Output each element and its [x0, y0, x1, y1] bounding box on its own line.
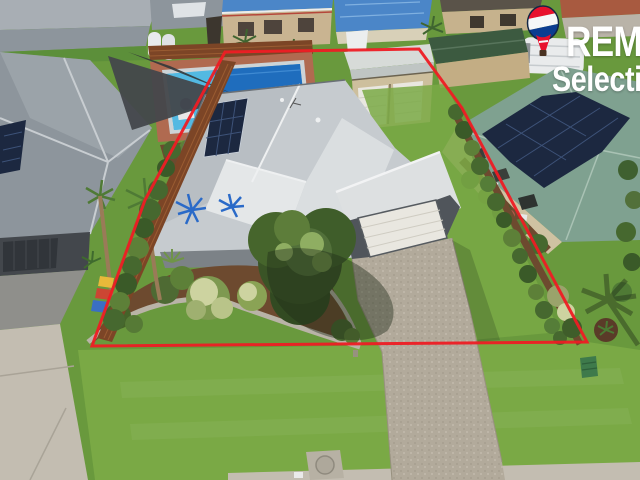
- solar-hot-water-unit: [172, 2, 206, 18]
- watermark-sub-text: Selecti: [552, 62, 640, 98]
- aerial-scene: [0, 0, 640, 480]
- front-lawn: [78, 342, 640, 480]
- utility-cover: [316, 456, 334, 474]
- aerial-photo: REM Selecti: [0, 0, 640, 480]
- green-utility-box: [580, 356, 598, 378]
- neighbour-green-shed: [428, 28, 530, 88]
- watermark-brand-text: REM: [566, 20, 640, 64]
- garden-marker: [353, 350, 358, 357]
- remax-balloon-icon: [522, 4, 564, 60]
